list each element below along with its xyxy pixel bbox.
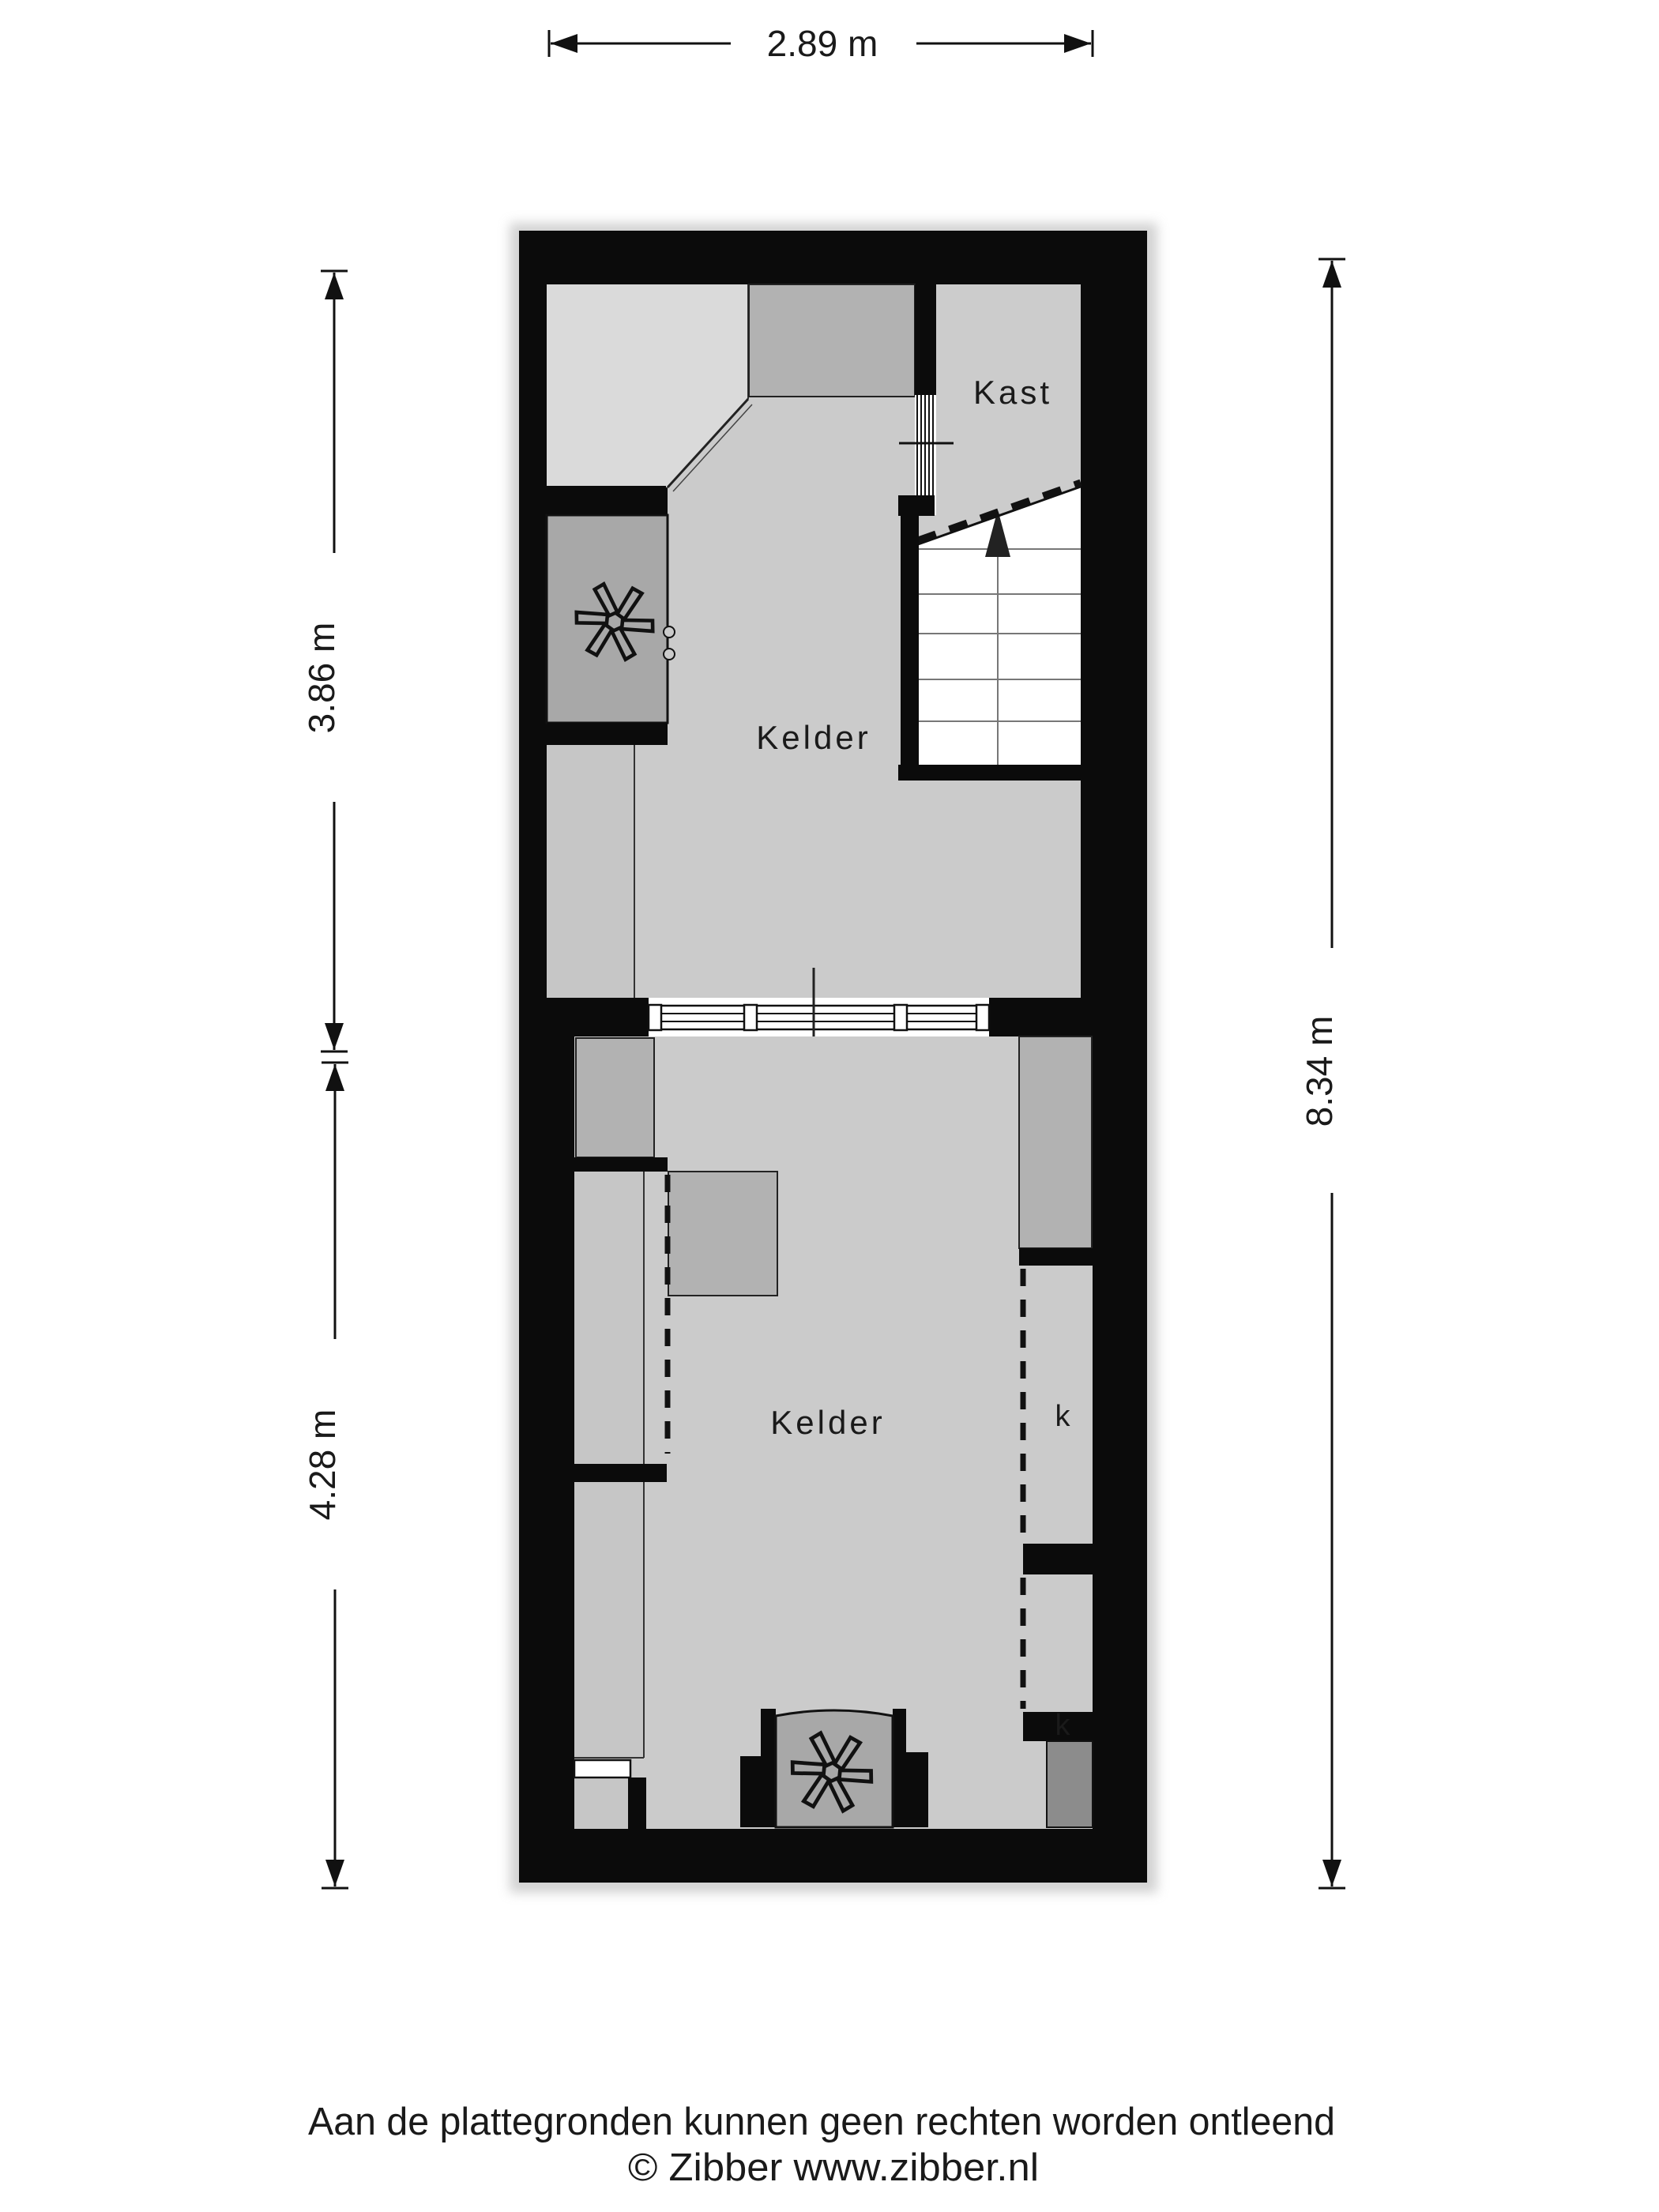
unit-knob-icon [664, 649, 675, 660]
floorplan-page: { "dimensions": { "top": "2.89 m", "left… [0, 0, 1659, 2212]
window-band [649, 998, 989, 1036]
platform-top [749, 284, 915, 397]
cabinet-left-top [576, 1038, 654, 1157]
wall-stub-left-2 [574, 1464, 667, 1482]
chimney-block [1047, 1741, 1093, 1827]
dimension-left-upper-label: 3.86 m [301, 623, 342, 734]
wall-stub-heater-bottom [547, 723, 668, 743]
left-strip-mid [574, 1172, 644, 1464]
room-kelder-upper-floor-left [634, 745, 671, 998]
cabinet-right [1019, 1036, 1092, 1248]
left-strip-upper [547, 745, 634, 998]
wall-niche-right-step [893, 1752, 928, 1827]
dimension-left-upper: 3.86 m [301, 271, 348, 1051]
wall-stub-left-1 [574, 1157, 668, 1172]
floorplan-canvas: Kelder Kast Kelder k k 2.89 m 3.86 m 4.2… [0, 0, 1659, 2212]
footer-copyright: © Zibber www.zibber.nl [628, 2146, 1039, 2189]
cabinet-square [668, 1172, 777, 1296]
wall-stub-right-2 [1023, 1544, 1093, 1574]
label-closet-2: k [1055, 1709, 1071, 1742]
dimension-top: 2.89 m [549, 23, 1093, 64]
dimension-right-label: 8.34 m [1299, 1016, 1340, 1127]
wall-niche-right [893, 1709, 906, 1752]
label-kelder-upper: Kelder [756, 719, 871, 756]
wall-niche-left [761, 1709, 776, 1827]
label-kast: Kast [973, 374, 1052, 411]
dimension-top-label: 2.89 m [767, 23, 878, 64]
label-closet-1: k [1055, 1400, 1071, 1433]
wall-stub-bay-bottom [547, 486, 666, 514]
wall-stub-right-1 [1019, 1248, 1093, 1266]
wall-niche-left-step [740, 1756, 761, 1827]
footer-disclaimer: Aan de plattegronden kunnen geen rechten… [308, 2101, 1335, 2143]
wall-pillar-kast [915, 284, 935, 396]
dimension-right: 8.34 m [1299, 259, 1345, 1888]
dimension-left-lower: 4.28 m [302, 1063, 348, 1888]
wall-stub-below-door [898, 495, 935, 516]
wall-stairwell-left [901, 513, 919, 766]
wall-left-lower [547, 1036, 574, 1829]
left-alcove-floor [574, 1780, 628, 1829]
unit-knob-icon [664, 626, 675, 638]
left-strip-low [574, 1482, 644, 1758]
window-left-bottom [574, 1760, 630, 1777]
label-kelder-lower: Kelder [770, 1404, 885, 1441]
wall-stairwell-bottom [898, 765, 1096, 781]
dimension-left-lower-label: 4.28 m [302, 1409, 343, 1521]
wall-stub-left-3 [628, 1777, 646, 1829]
